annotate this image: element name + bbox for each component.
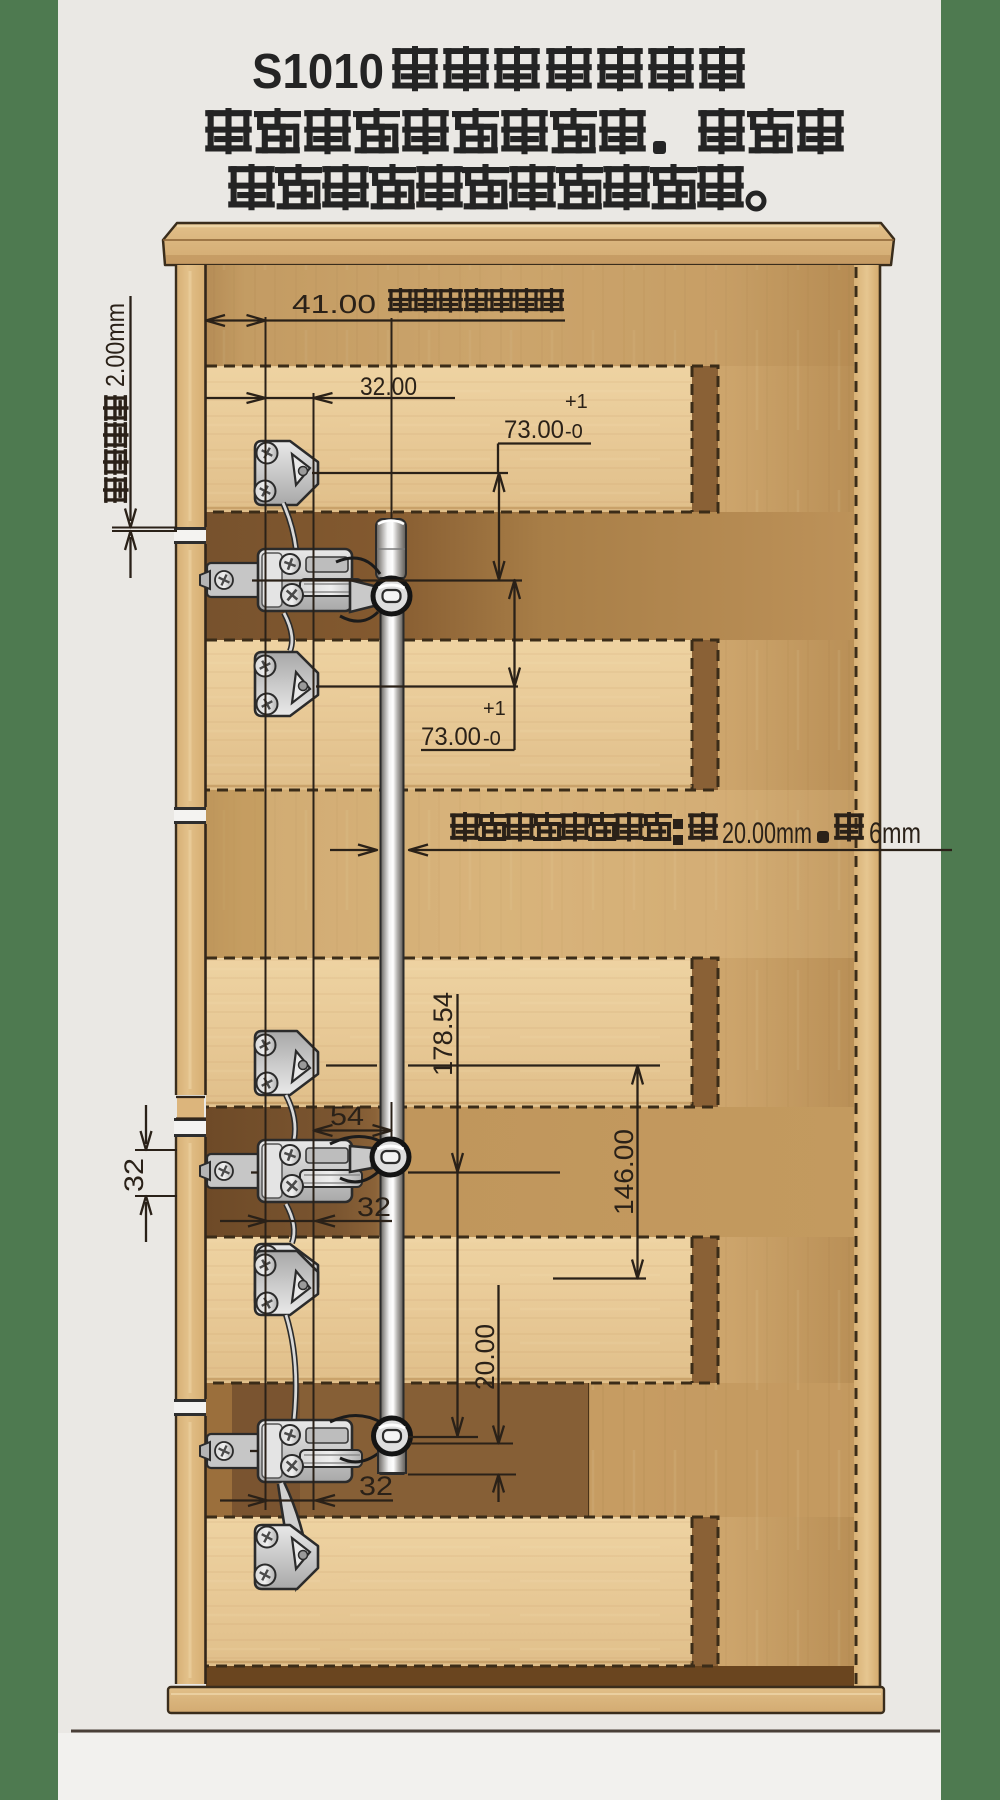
svg-text:73.00: 73.00 [504, 416, 564, 444]
svg-text:20.00: 20.00 [470, 1324, 500, 1390]
svg-text:6mm: 6mm [869, 817, 921, 850]
svg-text:54: 54 [330, 1101, 364, 1131]
svg-text:20.00mm: 20.00mm [722, 817, 812, 850]
svg-text:41.00: 41.00 [292, 289, 376, 319]
svg-text:-0: -0 [483, 728, 501, 750]
svg-text:178.54: 178.54 [428, 992, 458, 1076]
svg-text:S1010: S1010 [252, 45, 384, 99]
svg-text:32.00: 32.00 [360, 373, 417, 401]
svg-text:146.00: 146.00 [609, 1129, 639, 1215]
svg-text:32: 32 [359, 1471, 393, 1501]
svg-text:32: 32 [119, 1158, 149, 1192]
svg-text:+1: +1 [565, 391, 588, 413]
svg-text:+1: +1 [483, 698, 506, 720]
svg-text:32: 32 [357, 1192, 391, 1222]
svg-text:73.00: 73.00 [421, 723, 481, 751]
svg-text:2.00mm: 2.00mm [100, 303, 130, 387]
svg-text:-0: -0 [565, 421, 583, 443]
